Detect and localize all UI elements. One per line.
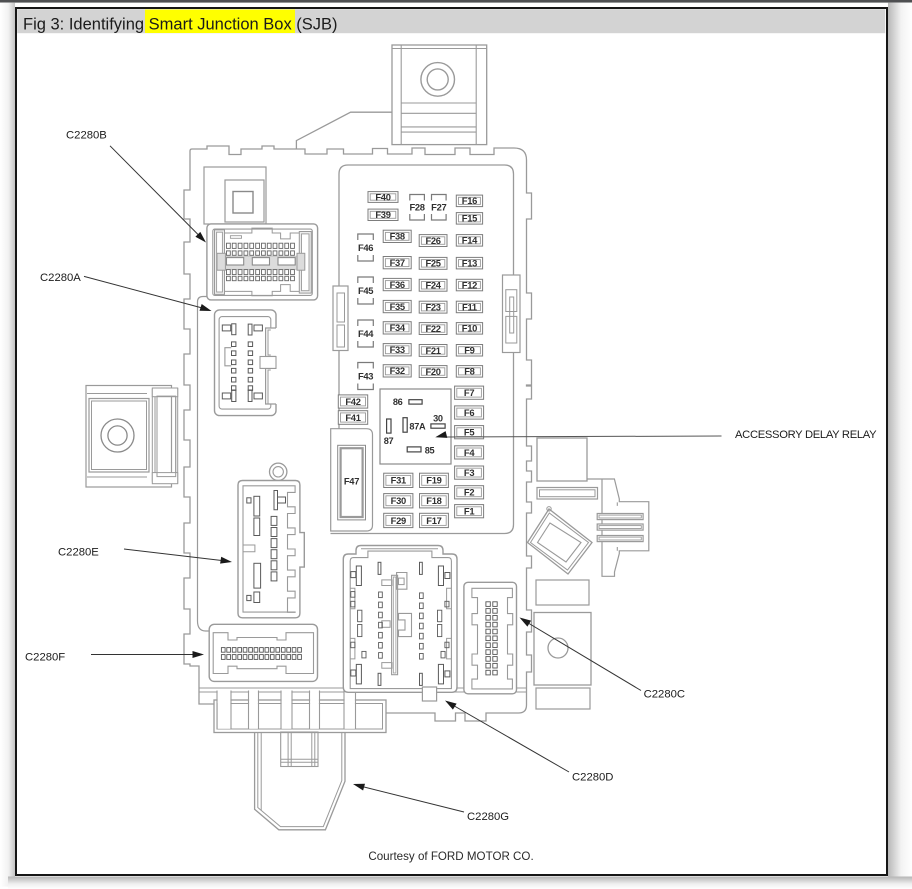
svg-text:F31: F31 bbox=[391, 475, 406, 486]
svg-text:F39: F39 bbox=[375, 209, 390, 220]
svg-text:85: 85 bbox=[425, 445, 435, 455]
svg-text:F28: F28 bbox=[409, 202, 424, 213]
svg-text:F14: F14 bbox=[462, 235, 478, 246]
svg-text:F19: F19 bbox=[426, 475, 441, 486]
svg-text:Courtesy of FORD MOTOR CO.: Courtesy of FORD MOTOR CO. bbox=[368, 850, 533, 863]
svg-text:F15: F15 bbox=[462, 213, 477, 224]
svg-text:F8: F8 bbox=[464, 366, 474, 377]
svg-text:F44: F44 bbox=[358, 328, 374, 339]
svg-text:F46: F46 bbox=[358, 242, 373, 253]
svg-text:F26: F26 bbox=[425, 235, 440, 246]
svg-text:F47: F47 bbox=[344, 476, 359, 487]
svg-text:87A: 87A bbox=[409, 422, 426, 432]
svg-text:F22: F22 bbox=[425, 323, 440, 334]
svg-text:30: 30 bbox=[433, 414, 443, 424]
svg-text:F20: F20 bbox=[425, 366, 440, 377]
svg-text:F7: F7 bbox=[464, 387, 474, 398]
svg-text:C2280E: C2280E bbox=[58, 547, 99, 559]
svg-text:F34: F34 bbox=[390, 322, 406, 333]
svg-text:Fig 3: Identifying Smart Junct: Fig 3: Identifying Smart Junction Box (S… bbox=[23, 16, 338, 34]
svg-text:F6: F6 bbox=[464, 407, 474, 418]
svg-text:F27: F27 bbox=[431, 202, 446, 213]
svg-text:F30: F30 bbox=[391, 495, 406, 506]
svg-text:87: 87 bbox=[384, 436, 394, 446]
svg-text:F33: F33 bbox=[390, 344, 405, 355]
svg-text:F38: F38 bbox=[390, 231, 405, 242]
svg-text:ACCESSORY DELAY RELAY: ACCESSORY DELAY RELAY bbox=[735, 429, 877, 441]
svg-text:F5: F5 bbox=[464, 427, 474, 438]
svg-text:F11: F11 bbox=[462, 301, 477, 312]
svg-text:86: 86 bbox=[393, 397, 403, 407]
svg-text:C2280B: C2280B bbox=[66, 130, 107, 142]
svg-text:C2280F: C2280F bbox=[25, 652, 65, 664]
svg-text:F37: F37 bbox=[390, 257, 405, 268]
svg-text:F36: F36 bbox=[390, 279, 405, 290]
svg-text:F2: F2 bbox=[464, 487, 474, 498]
svg-text:F42: F42 bbox=[345, 396, 360, 407]
svg-text:F29: F29 bbox=[391, 515, 406, 526]
svg-text:F45: F45 bbox=[358, 285, 373, 296]
svg-text:C2280C: C2280C bbox=[644, 689, 685, 701]
svg-text:F21: F21 bbox=[425, 345, 440, 356]
svg-text:F12: F12 bbox=[462, 279, 477, 290]
svg-text:F24: F24 bbox=[425, 280, 441, 291]
svg-text:F43: F43 bbox=[358, 370, 373, 381]
svg-text:F35: F35 bbox=[390, 301, 405, 312]
svg-text:F17: F17 bbox=[426, 515, 441, 526]
svg-text:C2280G: C2280G bbox=[467, 811, 509, 823]
svg-text:F41: F41 bbox=[345, 412, 360, 423]
svg-text:F25: F25 bbox=[425, 258, 440, 269]
svg-text:F4: F4 bbox=[464, 447, 475, 458]
svg-text:C2280A: C2280A bbox=[40, 272, 81, 284]
svg-text:F16: F16 bbox=[462, 195, 477, 206]
svg-text:F13: F13 bbox=[462, 258, 477, 269]
svg-text:F23: F23 bbox=[425, 302, 440, 313]
svg-text:C2280D: C2280D bbox=[572, 772, 613, 784]
svg-text:F18: F18 bbox=[426, 495, 441, 506]
svg-text:F3: F3 bbox=[464, 467, 474, 478]
svg-text:F32: F32 bbox=[390, 365, 405, 376]
svg-text:F40: F40 bbox=[375, 191, 390, 202]
svg-text:F10: F10 bbox=[462, 323, 477, 334]
svg-text:F1: F1 bbox=[464, 506, 474, 517]
svg-text:F9: F9 bbox=[464, 345, 474, 356]
